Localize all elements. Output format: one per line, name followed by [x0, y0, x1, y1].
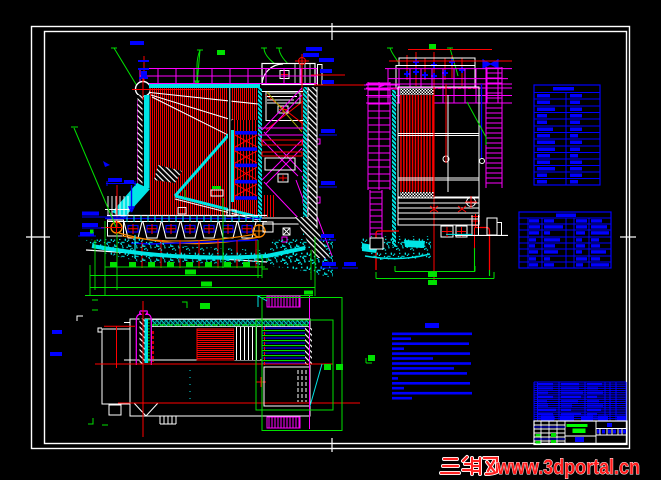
svg-text:www.3dportal.cn: www.3dportal.cn	[496, 456, 640, 479]
